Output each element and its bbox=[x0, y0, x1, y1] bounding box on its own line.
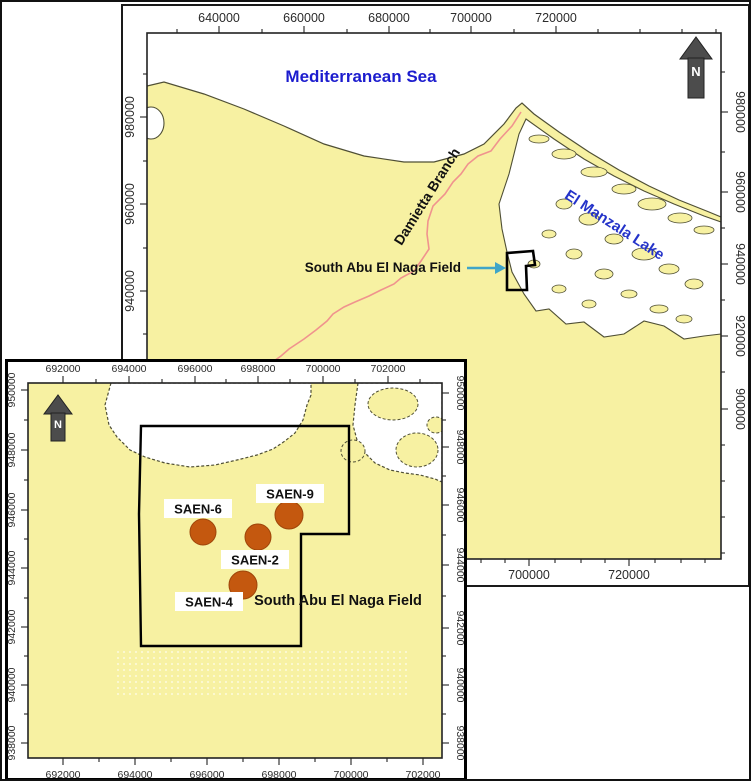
lake-island bbox=[552, 285, 566, 293]
axis-tick-label: 944000 bbox=[454, 547, 464, 582]
inset-lake-island bbox=[396, 433, 438, 467]
axis-tick-label: 942000 bbox=[8, 609, 18, 644]
well-marker bbox=[190, 519, 216, 545]
axis-tick-label: 950000 bbox=[8, 372, 18, 407]
inset-lake-island bbox=[341, 440, 365, 462]
axis-tick-label: 694000 bbox=[111, 363, 146, 375]
axis-tick-label: 720000 bbox=[608, 568, 650, 582]
axis-tick-label: 680000 bbox=[368, 11, 410, 25]
lake-island bbox=[582, 300, 596, 308]
well-label: SAEN-6 bbox=[174, 502, 222, 517]
axis-tick-label: 948000 bbox=[8, 432, 18, 467]
axis-tick-label: 692000 bbox=[45, 363, 80, 375]
inset-map-panel: 6920006940006960006980007000007020006920… bbox=[5, 359, 467, 781]
axis-tick-label: 698000 bbox=[261, 769, 296, 778]
axis-tick-label: 980000 bbox=[733, 91, 747, 133]
axis-tick-label: 900000 bbox=[733, 388, 747, 430]
lake-island bbox=[694, 226, 714, 234]
lake-island bbox=[542, 230, 556, 238]
lake-island bbox=[685, 279, 703, 289]
location-map-figure: 6400006600006800007000007200007000007200… bbox=[0, 0, 751, 781]
axis-tick-label: 640000 bbox=[198, 11, 240, 25]
inset-lake-island bbox=[368, 388, 418, 420]
lake-island bbox=[581, 167, 607, 177]
axis-tick-label: 660000 bbox=[283, 11, 325, 25]
axis-tick-label: 720000 bbox=[535, 11, 577, 25]
mediterranean-sea-label: Mediterranean Sea bbox=[285, 67, 437, 86]
axis-tick-label: 946000 bbox=[454, 487, 464, 522]
lake-island bbox=[668, 213, 692, 223]
axis-tick-label: 696000 bbox=[177, 363, 212, 375]
axis-tick-label: 950000 bbox=[454, 375, 464, 410]
axis-tick-label: 702000 bbox=[405, 769, 440, 778]
axis-tick-label: 942000 bbox=[454, 610, 464, 645]
lake-island bbox=[612, 184, 636, 194]
settlement-dot-pattern bbox=[115, 649, 410, 699]
lake-island bbox=[552, 149, 576, 159]
axis-tick-label: 920000 bbox=[733, 315, 747, 357]
lake-island bbox=[650, 305, 668, 313]
axis-tick-label: 700000 bbox=[333, 769, 368, 778]
lake-island bbox=[529, 135, 549, 143]
lake-island bbox=[676, 315, 692, 323]
well-marker bbox=[245, 524, 271, 550]
axis-tick-label: 700000 bbox=[508, 568, 550, 582]
axis-tick-label: 938000 bbox=[454, 725, 464, 760]
axis-tick-label: 696000 bbox=[189, 769, 224, 778]
axis-tick-label: 694000 bbox=[117, 769, 152, 778]
well-label: SAEN-4 bbox=[185, 595, 233, 610]
axis-tick-label: 938000 bbox=[8, 725, 18, 760]
axis-tick-label: 940000 bbox=[8, 667, 18, 702]
north-letter-inset: N bbox=[54, 419, 62, 431]
lake-island bbox=[566, 249, 582, 259]
well-marker bbox=[275, 501, 303, 529]
axis-tick-label: 960000 bbox=[733, 171, 747, 213]
axis-tick-label: 944000 bbox=[8, 550, 18, 585]
field-label-main: South Abu El Naga Field bbox=[305, 260, 461, 275]
west-lagoon bbox=[138, 107, 164, 139]
axis-tick-label: 940000 bbox=[123, 270, 137, 312]
axis-tick-label: 700000 bbox=[305, 363, 340, 375]
axis-tick-label: 702000 bbox=[370, 363, 405, 375]
axis-tick-label: 692000 bbox=[45, 769, 80, 778]
axis-tick-label: 980000 bbox=[123, 96, 137, 138]
axis-tick-label: 948000 bbox=[454, 429, 464, 464]
axis-tick-label: 700000 bbox=[450, 11, 492, 25]
axis-tick-label: 940000 bbox=[454, 667, 464, 702]
north-letter-main: N bbox=[691, 64, 700, 79]
lake-island bbox=[638, 198, 666, 210]
lake-island bbox=[621, 290, 637, 298]
axis-tick-label: 940000 bbox=[733, 243, 747, 285]
well-label: SAEN-2 bbox=[231, 553, 279, 568]
well-label: SAEN-9 bbox=[266, 487, 314, 502]
axis-tick-label: 960000 bbox=[123, 183, 137, 225]
inset-map: 6920006940006960006980007000007020006920… bbox=[8, 362, 464, 778]
field-label-inset: South Abu El Naga Field bbox=[254, 593, 422, 609]
lake-island bbox=[659, 264, 679, 274]
axis-tick-label: 946000 bbox=[8, 492, 18, 527]
lake-island bbox=[595, 269, 613, 279]
axis-tick-label: 698000 bbox=[240, 363, 275, 375]
